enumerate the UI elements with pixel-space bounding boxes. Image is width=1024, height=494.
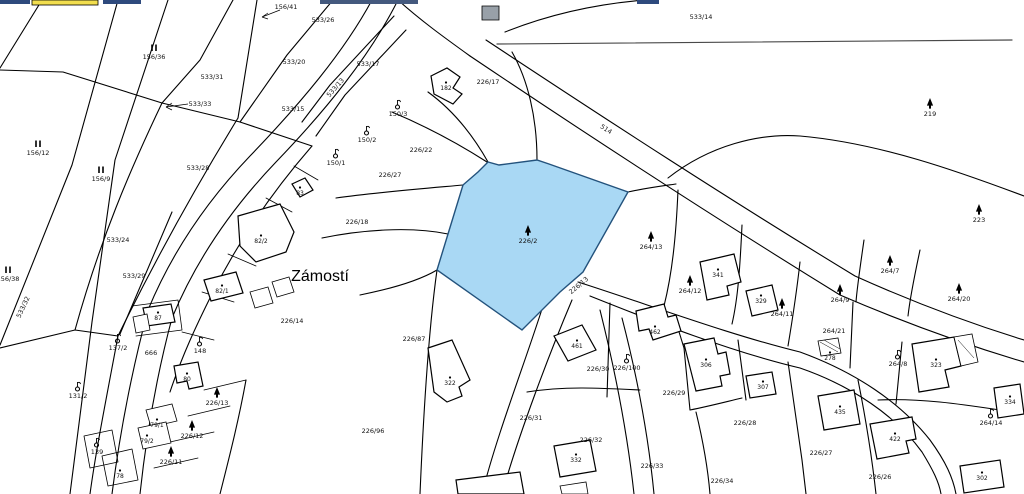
svg-text:226/11: 226/11: [160, 458, 183, 466]
parcel-label: 156/38: [0, 267, 19, 284]
svg-text:533/14: 533/14: [690, 13, 713, 21]
parcel-label: 533/17: [357, 60, 380, 68]
parcel-label: 264/12: [679, 275, 702, 295]
svg-text:435: 435: [834, 409, 846, 416]
building-footprint: [428, 340, 470, 402]
parcel-label: 226/34: [711, 477, 734, 485]
parcel-label: 533/20: [283, 58, 306, 66]
parcel-label: 533/29: [123, 272, 146, 280]
parcel-label: 226/27: [379, 171, 402, 179]
svg-text:322: 322: [444, 380, 456, 387]
parcel-label: 533/14: [690, 13, 713, 21]
svg-text:533/15: 533/15: [282, 105, 305, 113]
parcel-label: 264/9: [831, 284, 850, 304]
parcel-label: 226/18: [346, 218, 369, 226]
edge-strip: [320, 0, 418, 4]
parcel-label: 150/2: [358, 126, 377, 144]
parcel-label: 666: [145, 349, 157, 357]
svg-text:533/33: 533/33: [189, 100, 212, 108]
parcel-label: 226/29: [663, 389, 686, 397]
parcel-label: 533/26: [312, 16, 335, 24]
svg-text:329: 329: [755, 298, 767, 305]
svg-text:156/36: 156/36: [143, 53, 166, 61]
parcel-label: 514: [599, 123, 614, 136]
parcel-label: 264/7: [881, 255, 900, 275]
svg-text:87: 87: [154, 315, 162, 322]
svg-text:156/9: 156/9: [92, 175, 111, 183]
svg-text:226/30: 226/30: [587, 365, 610, 373]
parcel-label: 226/22: [410, 146, 433, 154]
parcel-label: 156/36: [143, 45, 166, 62]
building-footprint: [133, 314, 150, 333]
svg-text:150/1: 150/1: [327, 159, 346, 167]
svg-text:148: 148: [194, 347, 206, 355]
svg-text:666: 666: [145, 349, 157, 357]
parcel-label: 156/41: [275, 3, 298, 11]
svg-text:306: 306: [700, 362, 712, 369]
svg-text:533/29: 533/29: [123, 272, 146, 280]
building-label: 78: [116, 469, 124, 480]
parcel-label: 533/15: [282, 105, 305, 113]
cadastral-map[interactable]: 156/41533/26156/36533/20533/31533/33533/…: [0, 0, 1024, 494]
parcel-label: 226/13: [206, 387, 229, 407]
parcel-label: 139: [91, 438, 103, 456]
svg-text:533/26: 533/26: [312, 16, 335, 24]
svg-text:226/27: 226/27: [379, 171, 402, 179]
svg-text:264/20: 264/20: [948, 295, 971, 303]
svg-text:156/41: 156/41: [275, 3, 298, 11]
parcel-label: 226/33: [641, 462, 664, 470]
svg-text:334: 334: [1004, 399, 1016, 406]
svg-text:533/20: 533/20: [283, 58, 306, 66]
svg-text:264/21: 264/21: [823, 327, 846, 335]
parcel-label: 264/8: [889, 350, 908, 368]
svg-text:533/31: 533/31: [201, 73, 224, 81]
svg-text:137/2: 137/2: [109, 344, 128, 352]
parcel-label: 223: [973, 204, 985, 224]
svg-text:332: 332: [570, 457, 582, 464]
parcel-label: 131/2: [69, 382, 88, 400]
svg-text:226/87: 226/87: [403, 335, 426, 343]
svg-text:182: 182: [440, 85, 452, 92]
place-label: Zámostí: [291, 268, 349, 285]
svg-text:150/3: 150/3: [389, 110, 408, 118]
svg-text:533/28: 533/28: [187, 164, 210, 172]
parcel-label: 226/100: [613, 354, 640, 372]
svg-text:156/12: 156/12: [27, 149, 50, 157]
svg-text:79/1: 79/1: [150, 422, 164, 429]
parcel-label: 150/1: [327, 149, 346, 167]
svg-text:302: 302: [976, 475, 988, 482]
parcel-label: 226/28: [734, 419, 757, 427]
edge-strip: [0, 0, 30, 4]
building-footprint: [238, 204, 294, 262]
svg-text:226/13: 226/13: [206, 399, 229, 407]
parcel-label: 156/9: [92, 167, 111, 184]
svg-text:514: 514: [599, 123, 614, 136]
svg-text:79/2: 79/2: [140, 438, 154, 445]
parcel-label: 226/96: [362, 427, 385, 435]
svg-text:82/1: 82/1: [215, 288, 229, 295]
svg-text:264/14: 264/14: [980, 419, 1003, 427]
svg-text:82/2: 82/2: [254, 238, 268, 245]
svg-text:219: 219: [924, 110, 936, 118]
svg-text:Zámostí: Zámostí: [291, 268, 349, 285]
svg-text:78: 78: [116, 473, 124, 480]
parcel-label: 156/12: [27, 141, 50, 158]
svg-text:264/7: 264/7: [881, 267, 900, 275]
parcel-label: 226/30: [587, 365, 610, 373]
building-footprint: [560, 482, 588, 494]
edge-strip: [32, 0, 98, 5]
svg-text:226/31: 226/31: [520, 414, 543, 422]
svg-text:264/12: 264/12: [679, 287, 702, 295]
svg-text:226/27: 226/27: [810, 449, 833, 457]
svg-text:226/14: 226/14: [281, 317, 304, 325]
parcel-label: 226/14: [281, 317, 304, 325]
svg-text:83: 83: [296, 190, 304, 197]
svg-text:150/2: 150/2: [358, 136, 377, 144]
svg-text:278: 278: [824, 355, 836, 362]
svg-text:226/12: 226/12: [181, 432, 204, 440]
edge-strip: [637, 0, 659, 4]
building-footprint: [456, 472, 524, 494]
svg-text:533/17: 533/17: [357, 60, 380, 68]
svg-text:226/32: 226/32: [580, 436, 603, 444]
parcel-label: 219: [924, 98, 936, 118]
svg-text:226/26: 226/26: [869, 473, 892, 481]
svg-text:323: 323: [930, 362, 942, 369]
parcel-label: 226/17: [477, 78, 500, 86]
svg-text:533/24: 533/24: [107, 236, 130, 244]
parcel-label: 150/3: [389, 100, 408, 118]
svg-text:80: 80: [183, 376, 191, 383]
parcel-label: 226/31: [520, 414, 543, 422]
svg-text:341: 341: [712, 272, 724, 279]
svg-text:226/29: 226/29: [663, 389, 686, 397]
svg-text:226/2: 226/2: [519, 237, 538, 245]
svg-text:226/18: 226/18: [346, 218, 369, 226]
svg-text:226/34: 226/34: [711, 477, 734, 485]
svg-text:226/28: 226/28: [734, 419, 757, 427]
svg-text:307: 307: [757, 384, 769, 391]
parcel-label: 533/33: [189, 100, 212, 108]
parcel-label: 533/24: [107, 236, 130, 244]
svg-text:139: 139: [91, 448, 103, 456]
svg-text:462: 462: [649, 329, 661, 336]
svg-text:226/100: 226/100: [613, 364, 640, 372]
svg-text:131/2: 131/2: [69, 392, 88, 400]
map-viewport[interactable]: 156/41533/26156/36533/20533/31533/33533/…: [0, 0, 1024, 494]
parcel-label: 533/31: [201, 73, 224, 81]
svg-text:226/22: 226/22: [410, 146, 433, 154]
svg-text:226/33: 226/33: [641, 462, 664, 470]
svg-text:226/96: 226/96: [362, 427, 385, 435]
parcel-label: 264/21: [823, 327, 846, 335]
parcel-label: 264/20: [948, 283, 971, 303]
parcel-label: 226/87: [403, 335, 426, 343]
parcel-label: 226/32: [580, 436, 603, 444]
svg-text:264/11: 264/11: [771, 310, 794, 318]
svg-text:264/8: 264/8: [889, 360, 908, 368]
parcel-label: 226/11: [160, 446, 183, 466]
svg-text:226/17: 226/17: [477, 78, 500, 86]
building-footprint: [250, 287, 273, 308]
svg-text:223: 223: [973, 216, 985, 224]
parcel-label: 226/12: [181, 420, 204, 440]
svg-text:264/9: 264/9: [831, 296, 850, 304]
parcel-label: 264/13: [640, 231, 663, 251]
svg-text:461: 461: [571, 343, 583, 350]
svg-text:422: 422: [889, 436, 901, 443]
parcel-label: 148: [194, 337, 206, 355]
parcel-label: 226/26: [869, 473, 892, 481]
svg-text:156/38: 156/38: [0, 275, 19, 283]
svg-text:264/13: 264/13: [640, 243, 663, 251]
parcel-label: 533/28: [187, 164, 210, 172]
shed-footprint: [482, 6, 499, 20]
parcel-label: 226/27: [810, 449, 833, 457]
edge-strip: [103, 0, 141, 4]
svg-text:533/32: 533/32: [15, 295, 32, 319]
building-footprint: [204, 272, 243, 301]
highlighted-parcel-226-2[interactable]: [437, 160, 628, 330]
parcel-label: 533/32: [15, 295, 32, 319]
